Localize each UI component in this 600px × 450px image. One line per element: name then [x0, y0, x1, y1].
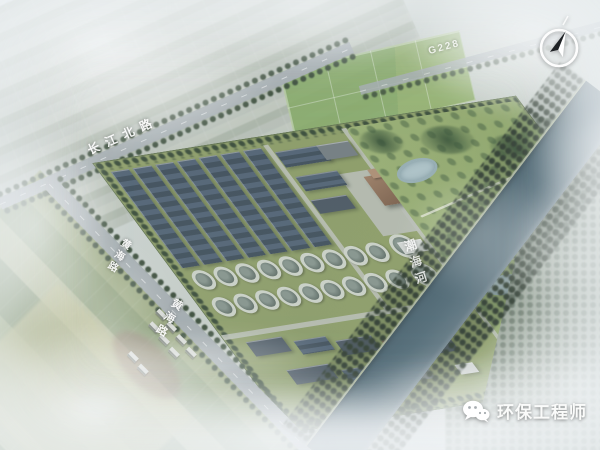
watermark: 环保工程师	[462, 398, 587, 423]
north-arrow-icon	[530, 14, 588, 76]
aerial-rendering: 长江北路 黄海路 黄海路 G228 潮海河	[0, 0, 600, 450]
solar-roof-workshops	[111, 148, 332, 268]
watermark-text: 环保工程师	[497, 398, 587, 423]
plant-building	[295, 170, 347, 191]
cloud	[90, 330, 330, 390]
wechat-icon	[462, 399, 490, 423]
